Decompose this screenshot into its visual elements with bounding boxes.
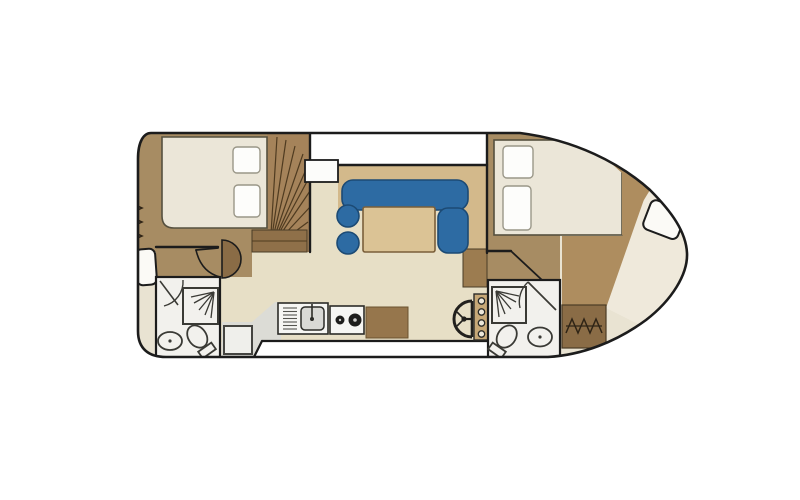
aft-bathroom [156,277,220,359]
salon-end-cabinet [463,249,487,287]
forward-bathroom [487,280,560,359]
aft-bed [162,137,267,228]
stair-top-locker [305,160,338,182]
forward-bed [494,140,650,236]
pillow [233,147,260,173]
floor-plan-canvas [0,0,800,500]
pillow [503,146,533,178]
under-counter-unit [224,326,252,354]
galley-sink-unit [278,303,328,334]
galley-stove [330,306,364,334]
side-walkway [254,341,488,357]
pillow [503,186,531,230]
pillow [234,185,260,217]
bow-steps [562,305,606,348]
boat-floor-plan [0,0,800,500]
galley-counter [366,307,408,338]
salon-table [363,207,435,252]
